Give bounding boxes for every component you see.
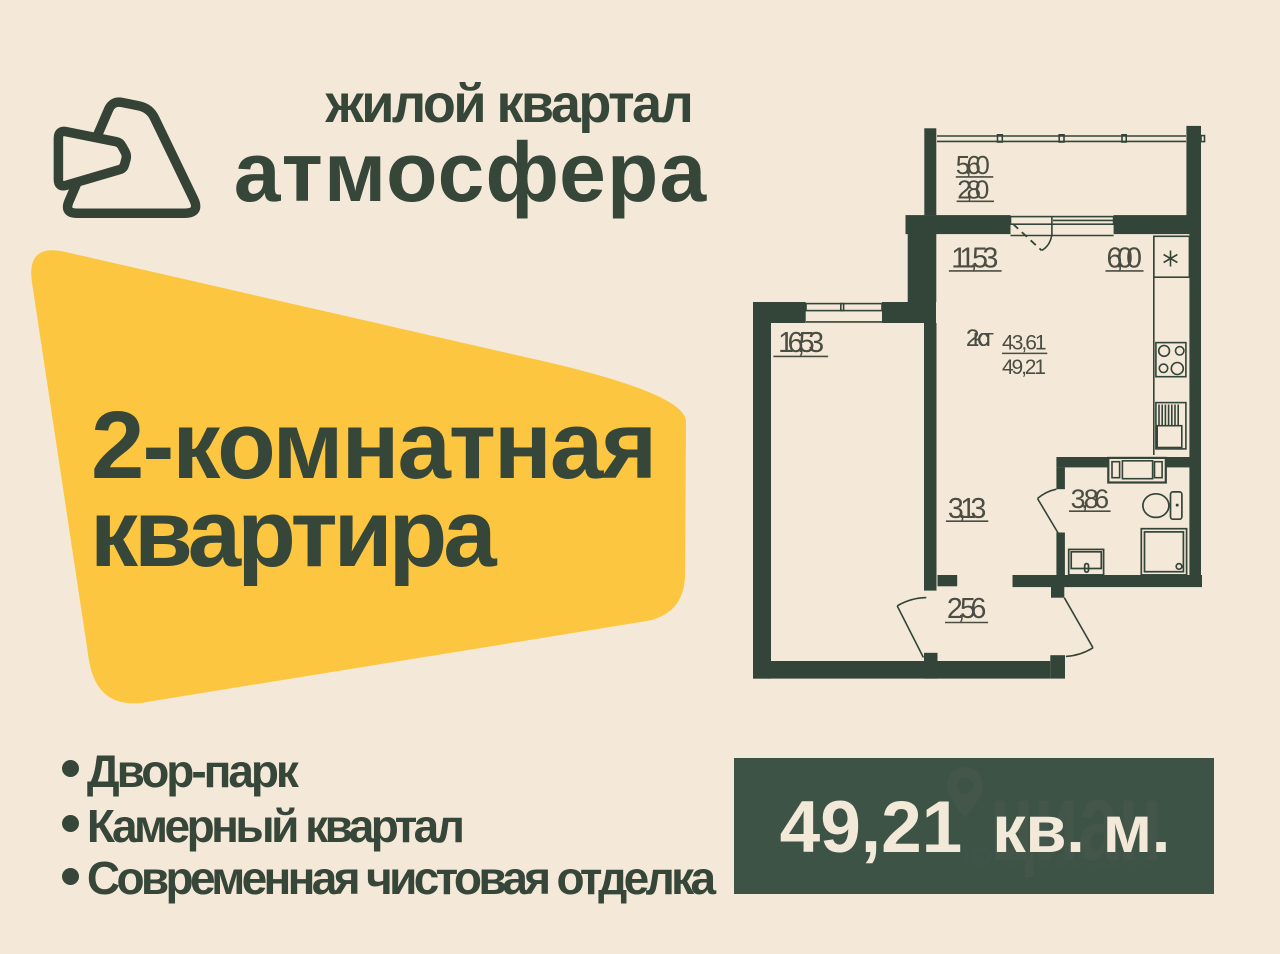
svg-text:2,56: 2,56 — [947, 593, 986, 625]
svg-text:6,00: 6,00 — [1107, 243, 1143, 275]
svg-text:43,61: 43,61 — [1002, 331, 1047, 354]
svg-text:2,80: 2,80 — [957, 174, 989, 204]
svg-text:49,21: 49,21 — [1002, 356, 1046, 379]
svg-text:11,53: 11,53 — [951, 243, 998, 275]
svg-text:16,53: 16,53 — [778, 327, 824, 359]
svg-text:3,13: 3,13 — [948, 493, 986, 525]
svg-text:2кст: 2кст — [966, 325, 994, 352]
svg-text:3,86: 3,86 — [1071, 484, 1110, 514]
